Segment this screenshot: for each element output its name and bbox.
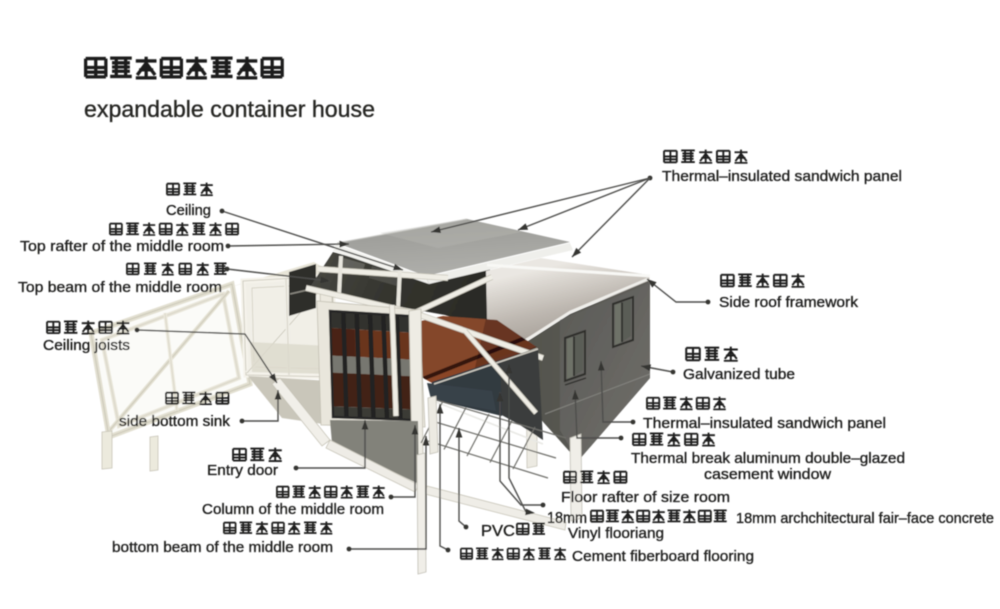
svg-text:side bottom sink: side bottom sink	[119, 413, 231, 430]
svg-text:PVC: PVC	[481, 523, 515, 540]
svg-text:Thermal break aluminum double–: Thermal break aluminum double–glazed	[631, 450, 905, 467]
svg-text:Galvanized tube: Galvanized tube	[683, 366, 795, 383]
svg-text:Side roof framework: Side roof framework	[719, 294, 859, 311]
svg-text:Entry door: Entry door	[207, 462, 278, 479]
svg-text:Top beam of the middle room: Top beam of the middle room	[18, 279, 222, 296]
svg-text:18mm archchitectural fair–face: 18mm archchitectural fair–face concrete	[736, 511, 994, 527]
svg-text:Cement fiberboard flooring: Cement fiberboard flooring	[572, 548, 754, 565]
svg-text:expandable container house: expandable container house	[84, 96, 375, 122]
svg-text:Thermal–insulated sandwich pan: Thermal–insulated sandwich panel	[643, 415, 886, 432]
svg-text:Ceiling: Ceiling	[166, 202, 211, 219]
svg-text:Top rafter of the middle room: Top rafter of the middle room	[20, 238, 224, 255]
svg-text:Vinyl flooriang: Vinyl flooriang	[568, 525, 664, 542]
svg-text:Floor rafter of size room: Floor rafter of size room	[561, 489, 730, 506]
svg-text:Ceiling joists: Ceiling joists	[43, 337, 130, 354]
svg-text:bottom beam of the middle room: bottom beam of the middle room	[112, 539, 333, 556]
svg-text:Column of the middle room: Column of the middle room	[202, 501, 384, 518]
svg-text:casement window: casement window	[704, 466, 831, 483]
svg-text:Thermal–insulated sandwich pan: Thermal–insulated sandwich panel	[662, 168, 902, 185]
